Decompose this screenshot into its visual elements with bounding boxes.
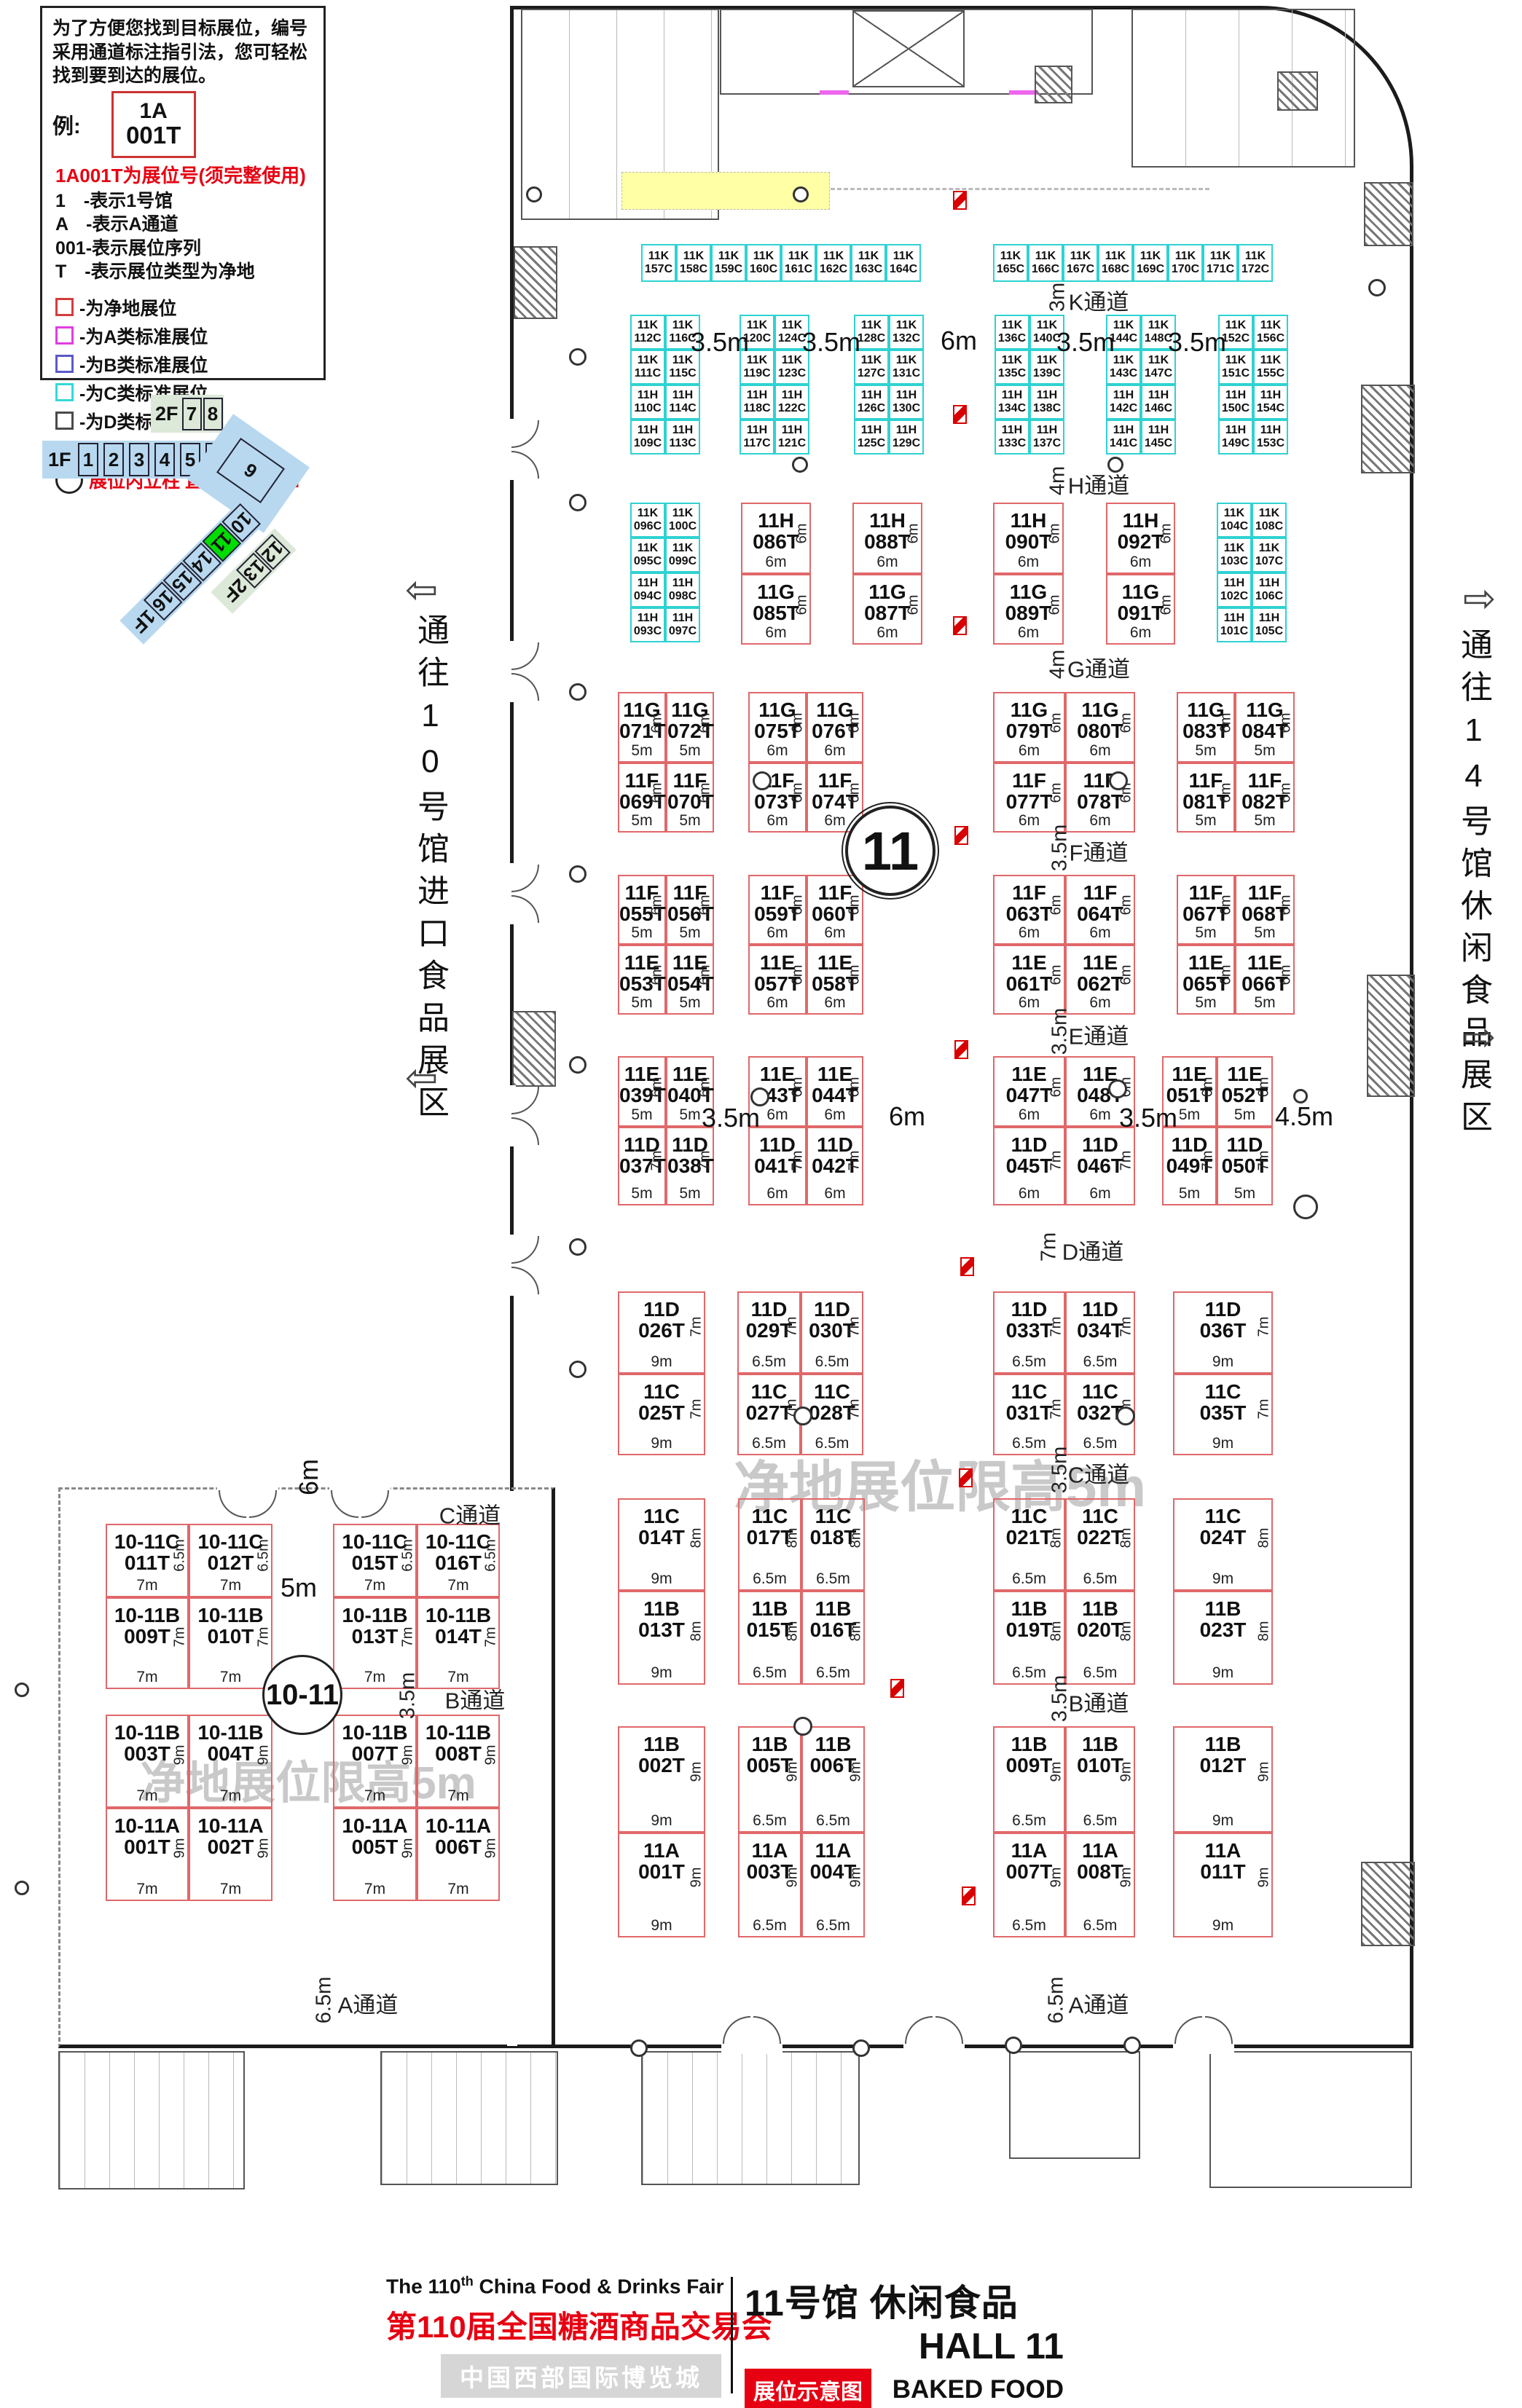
booth-11H-114C: 11H114C <box>665 385 700 420</box>
booth-width-dim: 6m <box>750 1185 805 1203</box>
booth-depth-dim: 7m <box>784 1305 801 1349</box>
booth-depth-dim: 7m <box>847 1305 863 1349</box>
booth-width-dim: 7m <box>107 1577 187 1594</box>
arrow-left-icon: ⇦ <box>405 567 438 613</box>
booth-11H-153C: 11H153C <box>1253 420 1288 455</box>
booth-width-dim: 9m <box>619 1917 704 1935</box>
booth-depth-dim: 9m <box>848 1856 865 1900</box>
booth-11H-130C: 11H130C <box>889 385 924 420</box>
booth-depth-dim: 7m <box>1048 1139 1065 1183</box>
booth-depth-dim: 6m <box>1118 884 1135 927</box>
booth-11H-150C: 11H150C <box>1218 385 1253 420</box>
corridor-label-left: 通往10号馆进口食品展区 <box>407 613 453 1128</box>
booth-depth-dim: 6m <box>1047 583 1064 627</box>
booth-11K-161C: 11K161C <box>781 244 816 282</box>
booth-depth-dim: 9m <box>1048 1856 1065 1900</box>
booth-11B-009T: 11B009T6.5m9m <box>993 1726 1065 1833</box>
booth-11H-121C: 11H121C <box>774 420 809 455</box>
booth-depth-dim: 7m <box>1200 1139 1217 1183</box>
booth-11H-105C: 11H105C <box>1252 607 1287 642</box>
aisle-width-dim: 3.5m <box>396 1672 420 1719</box>
booth-width-dim: 5m <box>619 994 664 1012</box>
booth-depth-dim: 6m <box>1048 884 1065 927</box>
booth-11K-158C: 11K158C <box>676 244 711 282</box>
booth-11K-172C: 11K172C <box>1238 244 1273 282</box>
booth-depth-dim: 6m <box>790 953 807 997</box>
booth-11F-056T: 11F056T5m6m <box>666 875 714 945</box>
booth-11C-018T: 11C018T6.5m8m <box>801 1498 865 1591</box>
booth-width-dim: 7m <box>107 1787 187 1805</box>
booth-width-dim: 6m <box>1107 624 1174 642</box>
booth-width-dim: 6m <box>995 1185 1064 1203</box>
booth-width-dim: 5m <box>1218 1185 1271 1203</box>
pillar <box>15 1881 29 1895</box>
booth-depth-dim: 6m <box>1048 701 1065 745</box>
gap-dim-label: 3.5m <box>691 327 749 358</box>
minimap-hall-2: 2 <box>103 443 124 476</box>
aisle-label-K通道: K通道 <box>1069 284 1129 317</box>
booth-width-dim: 5m <box>667 812 713 830</box>
booth-width-dim: 6m <box>1067 812 1134 830</box>
booth-width-dim: 6m <box>742 554 809 571</box>
pillar <box>750 1087 769 1106</box>
booth-11H-141C: 11H141C <box>1106 420 1141 455</box>
booth-11K-165C: 11K165C <box>993 244 1028 282</box>
booth-width-dim: 6.5m <box>1067 1435 1134 1452</box>
booth-11E-052T: 11E052T5m6m <box>1217 1056 1273 1127</box>
fire-well-icon <box>959 1468 973 1487</box>
booth-depth-dim: 6m <box>649 1066 666 1109</box>
booth-depth-dim: 6m <box>847 884 863 927</box>
pillar <box>569 1238 587 1256</box>
booth-11G-084T: 11G084T5m6m <box>1235 692 1295 763</box>
booth-depth-dim: 6m <box>794 583 811 627</box>
booth-depth-dim: 8m <box>1048 1516 1065 1560</box>
booth-depth-dim: 6m <box>1158 512 1175 556</box>
booth-depth-dim: 8m <box>1256 1516 1273 1560</box>
stairs-hatch-block <box>1361 385 1415 473</box>
booth-depth-dim: 6m <box>649 771 666 815</box>
example-booth-code: 001T <box>126 123 181 149</box>
legend-example-label: 例: <box>52 109 81 140</box>
booth-width-dim: 7m <box>418 1787 498 1805</box>
booth-depth-dim: 8m <box>689 1610 705 1653</box>
booth-11F-077T: 11F077T6m6m <box>993 763 1065 833</box>
hall-title-en: HALL 11 <box>745 2328 1064 2364</box>
booth-depth-dim: 7m <box>1256 1305 1273 1349</box>
booth-11D-026T: 11D026T9m7m <box>618 1291 705 1374</box>
booth-width-dim: 6m <box>750 994 805 1012</box>
legend-rule: T -表示展位类型为净地 <box>55 260 313 284</box>
top-right-facility-room <box>1131 9 1355 168</box>
booth-depth-dim: 9m <box>1048 1750 1065 1794</box>
booth-depth-dim: 6m <box>847 701 863 745</box>
booth-width-dim: 5m <box>1178 812 1233 830</box>
pillar <box>1293 1089 1308 1103</box>
aisle-label-B通道: B通道 <box>445 1683 506 1715</box>
minimap-2f-label: 2F <box>155 403 179 425</box>
booth-depth-dim: 7m <box>1256 1139 1273 1183</box>
booth-width-dim: 5m <box>619 812 664 830</box>
booth-width-dim: 6.5m <box>1067 1917 1134 1935</box>
booth-11K-166C: 11K166C <box>1028 244 1063 282</box>
booth-width-dim: 6.5m <box>739 1353 799 1371</box>
booth-11D-050T: 11D050T5m7m <box>1217 1127 1273 1205</box>
aisle-label-F通道: F通道 <box>1070 835 1129 867</box>
booth-depth-dim: 9m <box>256 1827 272 1870</box>
booth-width-dim: 9m <box>619 1570 704 1588</box>
booth-width-dim: 6m <box>995 742 1064 760</box>
booth-11H-122C: 11H122C <box>774 385 809 420</box>
booth-11H-094C: 11H094C <box>630 573 665 607</box>
booth-depth-dim: 6m <box>1218 701 1235 745</box>
booth-depth-dim: 6m <box>1200 1066 1217 1109</box>
aisle-width-dim: 4m <box>1046 466 1070 495</box>
booth-width-dim: 5m <box>1218 1106 1271 1124</box>
booth-11K-160C: 11K160C <box>746 244 781 282</box>
booth-depth-dim: 6m <box>649 884 666 927</box>
booth-11K-156C: 11K156C <box>1253 315 1288 350</box>
booth-depth-dim: 7m <box>400 1616 417 1659</box>
booth-width-dim: 6.5m <box>740 1812 800 1830</box>
legend-box: 为了方便您找到目标展位，编号采用通道标注指引法，您可轻松找到要到达的展位。 例:… <box>40 6 326 380</box>
stairs-hatch-block <box>1364 182 1413 246</box>
aisle-width-dim: 6.5m <box>1045 1977 1069 2023</box>
booth-11C-035T: 11C035T9m7m <box>1173 1374 1273 1455</box>
booth-11G-085T: 11G085T6m6m <box>741 574 811 645</box>
booth-width-dim: 6.5m <box>803 1812 863 1830</box>
booth-11C-027T: 11C027T6.5m7m <box>737 1374 801 1455</box>
venue-name: 中国西部国际博览城 <box>441 2354 721 2398</box>
booth-depth-dim: 8m <box>848 1610 865 1653</box>
booth-depth-dim: 9m <box>172 1827 189 1870</box>
booth-11E-053T: 11E053T5m6m <box>618 945 666 1015</box>
pillar <box>569 1056 587 1074</box>
pillar <box>1123 2037 1141 2054</box>
booth-11E-066T: 11E066T5m6m <box>1235 945 1295 1015</box>
booth-11E-057T: 11E057T6m6m <box>748 945 807 1015</box>
booth-width-dim: 6m <box>1067 742 1134 760</box>
booth-11H-133C: 11H133C <box>995 420 1029 455</box>
booth-11E-054T: 11E054T5m6m <box>666 945 714 1015</box>
booth-11B-013T: 11B013T9m8m <box>618 1591 705 1685</box>
booth-depth-dim: 6m <box>790 771 807 815</box>
booth-11K-108C: 11K108C <box>1252 503 1287 538</box>
booth-width-dim: 9m <box>1174 1812 1271 1830</box>
booth-11K-099C: 11K099C <box>665 538 700 573</box>
booth-depth-dim: 6m <box>1048 1066 1065 1109</box>
pillar <box>852 2039 870 2057</box>
legend-headline: 1A001T为展位号(须完整使用) <box>55 161 313 188</box>
aisle-width-dim: 3.5m <box>1048 825 1072 871</box>
booth-depth-dim: 7m <box>172 1616 189 1659</box>
booth-10-11B-003T: 10-11B003T7m9m <box>106 1715 189 1808</box>
booth-depth-dim: 9m <box>689 1856 705 1900</box>
booth-11D-045T: 11D045T6m7m <box>993 1127 1065 1205</box>
booth-width-dim: 6.5m <box>995 1570 1064 1588</box>
aisle-label-H通道: H通道 <box>1068 468 1129 500</box>
arrow-right-icon: ⇨ <box>1463 1014 1496 1060</box>
booth-11F-063T: 11F063T6m6m <box>993 875 1065 945</box>
booth-11H-093C: 11H093C <box>630 607 665 642</box>
booth-11B-015T: 11B015T6.5m8m <box>738 1591 801 1685</box>
gap-dim-label: 3.5m <box>802 327 860 358</box>
booth-depth-dim: 6m <box>1278 953 1295 997</box>
booth-depth-dim: 9m <box>483 1827 500 1870</box>
booth-width-dim: 9m <box>619 1812 704 1830</box>
booth-depth-dim: 9m <box>256 1734 272 1777</box>
legend-rules: 1 -表示1号馆A -表示A通道001-表示展位序列T -表示展位类型为净地 <box>52 189 313 284</box>
legend-rule: A -表示A通道 <box>55 213 313 237</box>
gap-dim-label: 6m <box>889 1101 925 1132</box>
booth-10-11C-015T: 10-11C015T7m6.5m <box>333 1524 417 1597</box>
booth-11K-170C: 11K170C <box>1168 244 1203 282</box>
booth-11H-088T: 11H088T6m6m <box>852 503 922 574</box>
booth-11K-163C: 11K163C <box>851 244 886 282</box>
booth-width-dim: 6.5m <box>995 1812 1064 1830</box>
legend-example-booth: 1A 001T <box>111 91 196 158</box>
fair-title-cn: 第110届全国糖酒商品交易会 <box>386 2302 721 2347</box>
booth-11K-167C: 11K167C <box>1063 244 1098 282</box>
booth-width-dim: 5m <box>1236 994 1293 1012</box>
booth-width-dim: 5m <box>667 924 713 942</box>
booth-11K-112C: 11K112C <box>630 315 665 350</box>
aisle-label-A通道: A通道 <box>338 1987 399 2020</box>
booth-depth-dim: 9m <box>785 1750 801 1794</box>
booth-depth-dim: 6m <box>906 512 922 556</box>
booth-11B-002T: 11B002T9m9m <box>618 1726 705 1833</box>
minimap-hall-7: 7 <box>182 398 202 430</box>
booth-depth-dim: 9m <box>400 1827 417 1870</box>
booth-depth-dim: 7m <box>790 1139 807 1183</box>
booth-width-dim: 6.5m <box>803 1570 863 1588</box>
legend-type-row: -为净地展位 <box>55 294 313 320</box>
booth-width-dim: 5m <box>1178 994 1233 1012</box>
booth-11H-149C: 11H149C <box>1218 420 1253 455</box>
minimap-hall-4: 4 <box>154 443 175 476</box>
pillar <box>569 865 587 883</box>
booth-width-dim: 6m <box>808 1106 862 1124</box>
booth-width-dim: 7m <box>334 1787 415 1805</box>
gap-dim-label: 3.5m <box>1119 1103 1177 1133</box>
pillar <box>15 1683 29 1697</box>
bottom-room <box>1009 2051 1140 2159</box>
door-opening <box>903 2044 965 2054</box>
arrow-right-icon: ⇨ <box>1463 575 1496 621</box>
booth-11K-171C: 11K171C <box>1203 244 1238 282</box>
booth-11C-022T: 11C022T6.5m8m <box>1065 1498 1135 1591</box>
booth-width-dim: 7m <box>190 1577 271 1594</box>
booth-width-dim: 6m <box>808 742 862 760</box>
booth-10-11C-016T: 10-11C016T7m6.5m <box>417 1524 500 1597</box>
booth-11G-087T: 11G087T6m6m <box>852 574 922 645</box>
booth-11B-012T: 11B012T9m9m <box>1173 1726 1273 1833</box>
booth-width-dim: 5m <box>1236 924 1293 942</box>
booth-width-dim: 6m <box>1067 994 1134 1012</box>
booth-11K-103C: 11K103C <box>1217 538 1252 573</box>
booth-depth-dim: 7m <box>689 1388 705 1431</box>
booth-depth-dim: 6m <box>1218 953 1235 997</box>
booth-depth-dim: 8m <box>785 1610 801 1653</box>
booth-width-dim: 6m <box>1067 1185 1134 1203</box>
legend-rule: 001-表示展位序列 <box>55 237 313 261</box>
fire-well-icon <box>953 616 967 635</box>
booth-11E-047T: 11E047T6m6m <box>993 1056 1065 1127</box>
minimap-hall-8: 8 <box>203 398 223 430</box>
booth-width-dim: 9m <box>1174 1435 1271 1452</box>
booth-depth-dim: 6m <box>1118 701 1135 745</box>
booth-depth-dim: 9m <box>1256 1750 1273 1794</box>
booth-11A-011T: 11A011T9m9m <box>1173 1833 1273 1937</box>
minimap-1f-label: 1F <box>48 449 71 471</box>
booth-11A-008T: 11A008T6.5m9m <box>1065 1833 1135 1937</box>
booth-depth-dim: 9m <box>1256 1856 1273 1900</box>
booth-depth-dim: 9m <box>689 1750 705 1794</box>
pillar <box>1109 771 1128 790</box>
booth-11K-155C: 11K155C <box>1253 350 1288 385</box>
booth-11C-024T: 11C024T9m8m <box>1173 1498 1273 1591</box>
booth-11H-110C: 11H110C <box>630 385 665 420</box>
booth-depth-dim: 9m <box>785 1856 801 1900</box>
booth-11A-001T: 11A001T9m9m <box>618 1833 705 1937</box>
booth-depth-dim: 6m <box>847 1066 863 1109</box>
booth-depth-dim: 6m <box>649 953 666 997</box>
booth-11F-055T: 11F055T5m6m <box>618 875 666 945</box>
booth-width-dim: 6m <box>1107 554 1174 571</box>
booth-11K-111C: 11K111C <box>630 350 665 385</box>
booth-width-dim: 7m <box>418 1881 498 1898</box>
booth-11G-071T: 11G071T5m6m <box>618 692 666 763</box>
booth-11B-020T: 11B020T6.5m8m <box>1065 1591 1135 1685</box>
pillar <box>753 771 772 790</box>
booth-depth-dim: 6m <box>1218 884 1235 927</box>
booth-width-dim: 9m <box>1174 1664 1271 1682</box>
pillar <box>526 186 542 202</box>
gap-dim-label: 5m <box>281 1573 317 1603</box>
booth-depth-dim: 7m <box>1118 1139 1135 1183</box>
booth-depth-dim: 6m <box>1278 701 1295 745</box>
dashed-guide <box>831 188 1209 190</box>
booth-depth-dim: 6m <box>1158 583 1175 627</box>
booth-10-11C-011T: 10-11C011T7m6.5m <box>106 1524 189 1597</box>
booth-11K-104C: 11K104C <box>1217 503 1252 538</box>
booth-11E-062T: 11E062T6m6m <box>1065 945 1135 1015</box>
booth-11C-025T: 11C025T9m7m <box>618 1374 705 1455</box>
booth-11F-068T: 11F068T5m6m <box>1235 875 1295 945</box>
booth-10-11A-001T: 10-11A001T7m9m <box>106 1808 189 1901</box>
booth-depth-dim: 8m <box>785 1516 801 1560</box>
legend-type-swatch <box>55 298 74 316</box>
booth-11K-159C: 11K159C <box>711 244 746 282</box>
pillar <box>1108 1079 1127 1098</box>
booth-11H-118C: 11H118C <box>740 385 774 420</box>
booth-11F-059T: 11F059T6m6m <box>748 875 807 945</box>
bottom-room <box>641 2051 860 2185</box>
booth-depth-dim: 7m <box>1256 1388 1273 1431</box>
pillar <box>793 1406 812 1425</box>
booth-depth-dim: 7m <box>256 1616 272 1659</box>
booth-11F-070T: 11F070T5m6m <box>666 763 714 833</box>
pillar <box>1368 279 1386 296</box>
door-marker <box>1009 90 1038 95</box>
door-opening <box>1173 2044 1234 2054</box>
minimap: 2F781F12345691F16151411102F1312 <box>18 382 350 681</box>
legend-rule: 1 -表示1号馆 <box>55 189 313 213</box>
booth-width-dim: 6.5m <box>995 1353 1064 1371</box>
booth-depth-dim: 6m <box>1048 771 1065 815</box>
booth-10-11B-004T: 10-11B004T7m9m <box>189 1715 272 1808</box>
booth-11H-154C: 11H154C <box>1253 385 1288 420</box>
booth-width-dim: 6.5m <box>803 1664 863 1682</box>
booth-11F-067T: 11F067T5m6m <box>1177 875 1235 945</box>
booth-width-dim: 6.5m <box>802 1353 862 1371</box>
booth-depth-dim: 6m <box>790 884 807 927</box>
booth-width-dim: 7m <box>107 1881 187 1898</box>
bottom-room <box>380 2051 558 2185</box>
legend-type-label: -为B类标准展位 <box>79 351 208 377</box>
booth-width-dim: 6m <box>995 554 1062 571</box>
aisle-label-G通道: G通道 <box>1067 651 1130 684</box>
pillar <box>569 683 587 701</box>
booth-11F-064T: 11F064T6m6m <box>1065 875 1135 945</box>
booth-11H-090T: 11H090T6m6m <box>993 503 1064 574</box>
booth-depth-dim: 6m <box>697 884 714 927</box>
aisle-width-dim: 3.5m <box>1048 1675 1072 1722</box>
booth-11D-049T: 11D049T5m7m <box>1162 1127 1217 1205</box>
booth-width-dim: 6m <box>854 624 921 642</box>
stairs-hatch-block <box>1277 71 1318 111</box>
booth-11E-065T: 11E065T5m6m <box>1177 945 1235 1015</box>
booth-depth-dim: 6m <box>847 953 863 997</box>
legend-type-row: -为A类标准展位 <box>55 323 313 349</box>
booth-11D-042T: 11D042T6m7m <box>807 1127 863 1205</box>
booth-width-dim: 6m <box>808 1185 862 1203</box>
booth-11H-137C: 11H137C <box>1029 420 1064 455</box>
pillar <box>569 494 587 511</box>
booth-width-dim: 6m <box>995 1106 1064 1124</box>
pillar <box>569 348 587 366</box>
booth-depth-dim: 6m <box>1278 884 1295 927</box>
booth-depth-dim: 6.5m <box>483 1534 500 1578</box>
pillar <box>569 1361 587 1378</box>
booth-width-dim: 6.5m <box>1067 1353 1134 1371</box>
booth-depth-dim: 8m <box>1118 1516 1135 1560</box>
booth-depth-dim: 8m <box>848 1516 865 1560</box>
booth-width-dim: 9m <box>1174 1917 1271 1935</box>
booth-11D-046T: 11D046T6m7m <box>1065 1127 1135 1205</box>
booth-depth-dim: 6m <box>790 701 807 745</box>
booth-11C-031T: 11C031T6.5m7m <box>993 1374 1065 1455</box>
fire-well-icon <box>953 405 967 424</box>
booth-10-11C-012T: 10-11C012T7m6.5m <box>189 1524 272 1597</box>
booth-depth-dim: 9m <box>1118 1750 1135 1794</box>
north-entrance-stairs <box>852 10 965 87</box>
door-opening <box>721 2044 782 2054</box>
booth-depth-dim: 7m <box>847 1388 863 1431</box>
pillar <box>630 2039 648 2057</box>
booth-11H-146C: 11H146C <box>1141 385 1176 420</box>
booth-depth-dim: 7m <box>847 1139 863 1183</box>
booth-11C-014T: 11C014T9m8m <box>618 1498 705 1591</box>
booth-11H-106C: 11H106C <box>1252 573 1287 607</box>
fire-well-icon <box>954 1040 968 1059</box>
corridor-label-right: 通往14号馆休闲食品展区 <box>1450 628 1496 1142</box>
booth-width-dim: 9m <box>619 1435 704 1452</box>
booth-11K-132C: 11K132C <box>889 315 924 350</box>
booth-width-dim: 6.5m <box>739 1435 799 1452</box>
booth-11E-058T: 11E058T6m6m <box>807 945 863 1015</box>
pillar <box>793 186 809 202</box>
